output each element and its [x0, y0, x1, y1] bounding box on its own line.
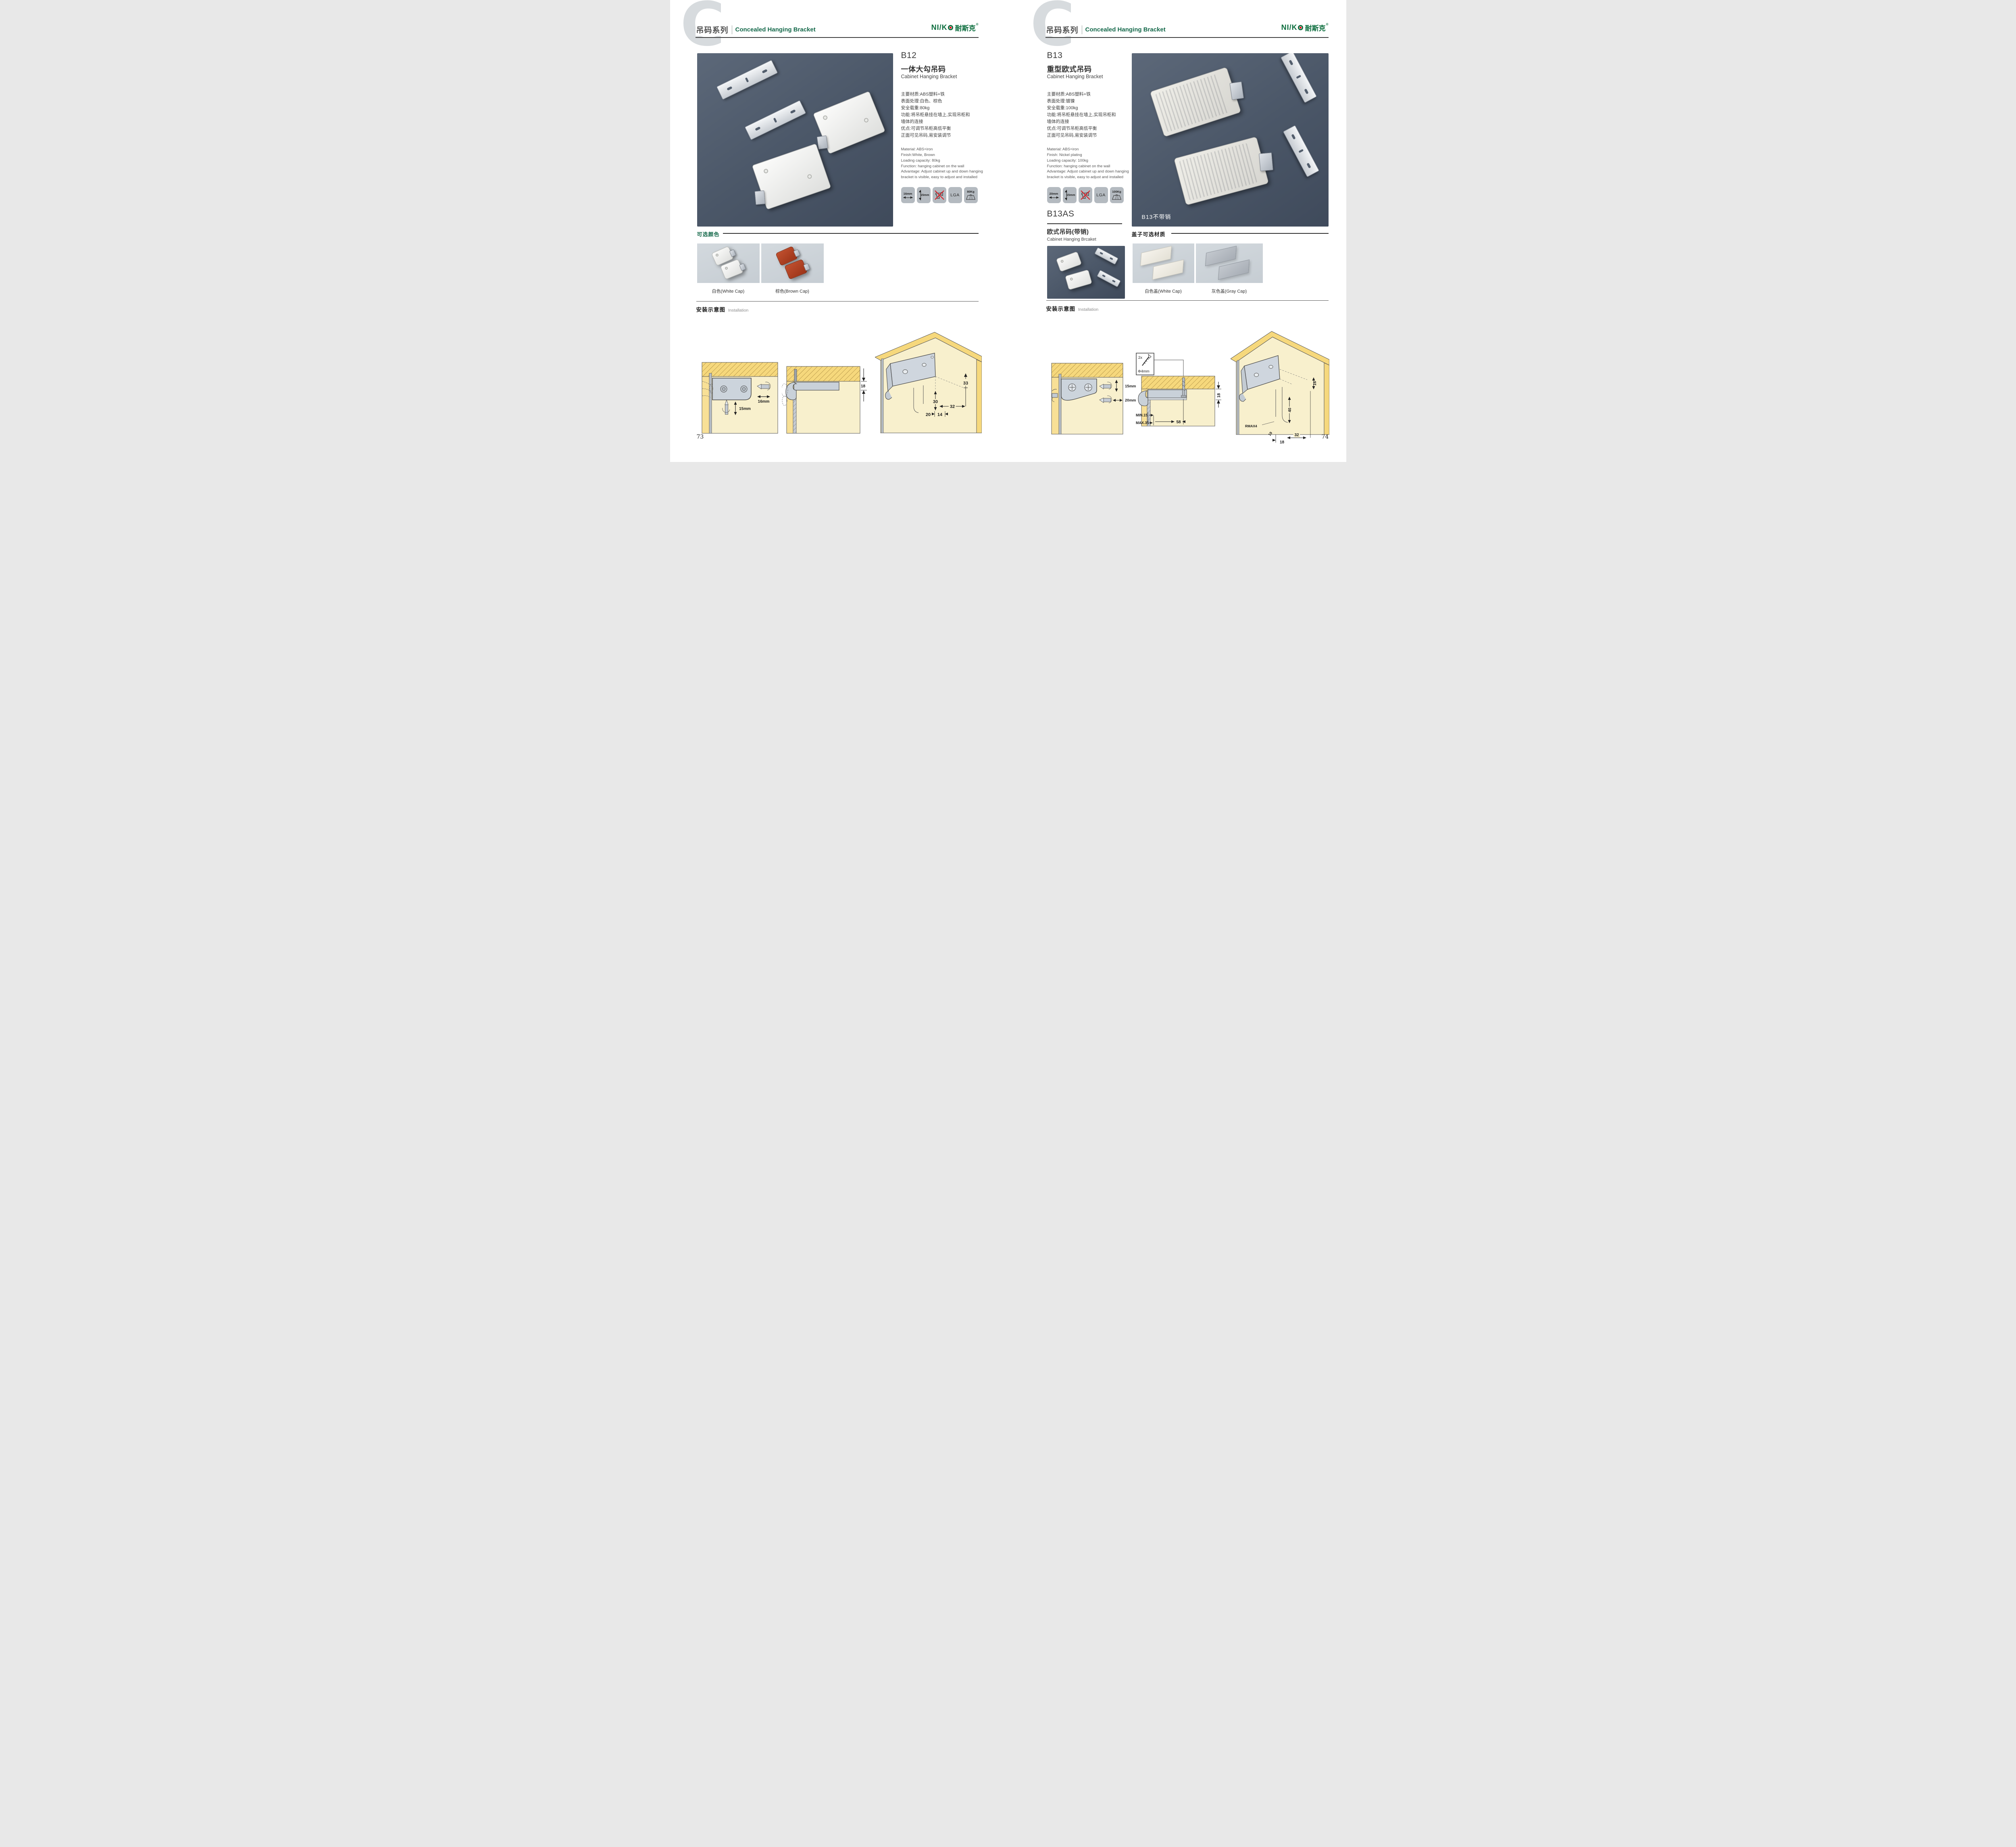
product-photo-b12: [697, 53, 893, 227]
cap-caption-gray: 灰色盖(Gray Cap): [1196, 288, 1263, 294]
page-left: C 吊码系列 Concealed Hanging Bracket NI/K 耐斯…: [670, 0, 1008, 462]
install-diagram-section: 2x Φ4mm 18: [1136, 353, 1223, 435]
brand-logo: NI/K 耐斯克 ®: [1281, 23, 1329, 33]
brand-logo: NI/K 耐斯克 ®: [931, 23, 979, 33]
dim-label: 30: [933, 399, 937, 404]
bracket-render: [1174, 137, 1269, 206]
page-number: 73: [697, 434, 704, 440]
sub-product-name-cn: 欧式吊码(带销): [1047, 227, 1089, 236]
logo-dot-icon: [1300, 27, 1302, 29]
color-option-white-photo: [697, 243, 760, 283]
no-drill-icon: [1079, 187, 1092, 203]
product-specs-cn: 主要材质:ABS塑料+铁表面处理:镀镍 安全载重:100kg功能:将吊柜悬挂在墙…: [1047, 91, 1128, 139]
cap-white-photo: [1133, 243, 1194, 283]
caps-rule: [1171, 233, 1329, 234]
logo-cn: 耐斯克: [1305, 23, 1326, 33]
product-specs-en: Material: ABS+ironFinish:White, Brown Lo…: [901, 147, 984, 180]
dim-label: 14: [937, 412, 942, 417]
colors-heading: 可选颜色: [697, 230, 720, 238]
logo-ring-icon: [1298, 25, 1303, 30]
feature-icons: 16mm 15mm LGA 80Kg: [901, 187, 978, 203]
panel-width-icon: 16mm: [901, 187, 915, 203]
dim-label: 16mm: [758, 399, 769, 404]
no-drill-icon: [933, 187, 946, 203]
series-title-en: Concealed Hanging Bracket: [735, 26, 816, 33]
header-divider: [1082, 25, 1082, 34]
dim-label: RMAX4: [1245, 424, 1257, 428]
lga-cert-icon: LGA: [1094, 187, 1108, 203]
logo-registered-mark: ®: [1326, 23, 1329, 26]
rail-render: [1283, 125, 1319, 177]
install-heading: 安装示意图 Installation: [1046, 304, 1099, 312]
header-rule: [696, 37, 979, 38]
color-caption-white: 白色(White Cap): [697, 288, 760, 294]
dim-label: 18: [1280, 440, 1285, 445]
logo-cn: 耐斯克: [955, 23, 976, 33]
product-code: B12: [901, 51, 917, 60]
dim-label: MAX.35: [1136, 421, 1149, 425]
panel-height-icon: 15mm: [1063, 187, 1077, 203]
install-rule: [1046, 300, 1329, 301]
panel-width-icon: 20mm: [1047, 187, 1061, 203]
bracket-render: [1150, 67, 1241, 137]
sub-product-rule: [1047, 223, 1122, 224]
dim-label: 15mm: [1125, 384, 1136, 389]
dim-label: 33: [963, 381, 968, 386]
install-heading: 安装示意图 Installation: [696, 305, 749, 313]
dim-label: 40: [1288, 408, 1292, 412]
product-name-en: Cabinet Hanging Bracket: [1047, 74, 1103, 79]
dim-label: 15mm: [739, 407, 751, 411]
product-name-cn: 一体大勾吊码: [901, 64, 946, 74]
install-rule: [696, 301, 979, 302]
product-photo-b13: B13不带销: [1132, 53, 1329, 227]
series-title-cn: 吊码系列: [696, 23, 731, 36]
rail-render: [1280, 53, 1316, 103]
sub-product-code: B13AS: [1047, 209, 1075, 219]
rail-render: [716, 60, 777, 100]
logo-latin: NI/K: [1281, 23, 1297, 32]
load-capacity-icon: 80Kg: [964, 187, 978, 203]
install-diagram-perspective: 33 30 32 20 14: [875, 331, 982, 436]
product-name-en: Cabinet Hanging Bracket: [901, 74, 957, 79]
feature-icons: 20mm 15mm LGA 100Kg: [1047, 187, 1124, 203]
logo-ring-icon: [948, 25, 953, 30]
dim-label: MIN.15: [1136, 413, 1148, 417]
logo-latin: NI/K: [931, 23, 948, 32]
cap-gray-photo: [1196, 243, 1263, 283]
dim-label: 18: [861, 384, 866, 389]
product-specs-cn: 主要材质:ABS塑料+铁表面处理:白色、棕色 安全载重:80kg功能:将吊柜悬挂…: [901, 91, 982, 139]
dim-label: 16: [1313, 381, 1317, 386]
header-divider: [732, 25, 732, 34]
bracket-render: [813, 91, 885, 154]
install-diagram-front: 16mm 15mm: [702, 362, 778, 434]
colors-rule: [723, 233, 979, 234]
install-diagram-perspective: 16 40 RMAX4 19 18 32: [1231, 331, 1329, 445]
page-header: 吊码系列 Concealed Hanging Bracket: [1045, 23, 1166, 36]
sub-product-name-en: Cabinet Hanging Brcaket: [1047, 237, 1096, 242]
product-code: B13: [1047, 51, 1063, 60]
lga-cert-icon: LGA: [948, 187, 962, 203]
logo-registered-mark: ®: [976, 23, 979, 26]
color-option-brown-photo: [761, 243, 824, 283]
screw-count-label: 2x: [1138, 356, 1142, 360]
rail-render: [744, 100, 806, 140]
install-diagram-section: 18: [782, 366, 867, 434]
catalog-spread: C 吊码系列 Concealed Hanging Bracket NI/K 耐斯…: [670, 0, 1346, 462]
product-name-cn: 重型欧式吊码: [1047, 64, 1092, 74]
page-number: 74: [1322, 434, 1329, 440]
install-diagram-front: 15mm 20mm: [1051, 363, 1138, 435]
product-specs-en: Material: ABS+ironFinish: Nickel plating…: [1047, 147, 1130, 180]
dim-label: 18: [1217, 393, 1221, 398]
logo-dot-icon: [950, 27, 952, 29]
cap-caption-white: 白色盖(White Cap): [1133, 288, 1194, 294]
dim-label: 32: [950, 404, 954, 409]
load-capacity-icon: 100Kg: [1110, 187, 1124, 203]
dim-label: 32: [1294, 433, 1299, 437]
series-title-en: Concealed Hanging Bracket: [1085, 26, 1166, 33]
page-right: C 吊码系列 Concealed Hanging Bracket NI/K 耐斯…: [1020, 0, 1346, 462]
panel-height-icon: 15mm: [917, 187, 931, 203]
dim-label: 20: [925, 412, 930, 417]
series-title-cn: 吊码系列: [1045, 23, 1081, 36]
screw-size-label: Φ4mm: [1138, 369, 1150, 374]
dim-label: 20mm: [1125, 398, 1136, 403]
page-header: 吊码系列 Concealed Hanging Bracket: [696, 23, 816, 36]
bracket-render: [752, 144, 831, 210]
color-caption-brown: 棕色(Brown Cap): [761, 288, 824, 294]
photo-variant-label: B13不带销: [1142, 213, 1171, 221]
product-photo-b13as: [1047, 246, 1125, 299]
dim-label: 58: [1176, 420, 1181, 424]
header-rule: [1045, 37, 1329, 38]
caps-heading: 盖子可选材质: [1132, 230, 1166, 238]
